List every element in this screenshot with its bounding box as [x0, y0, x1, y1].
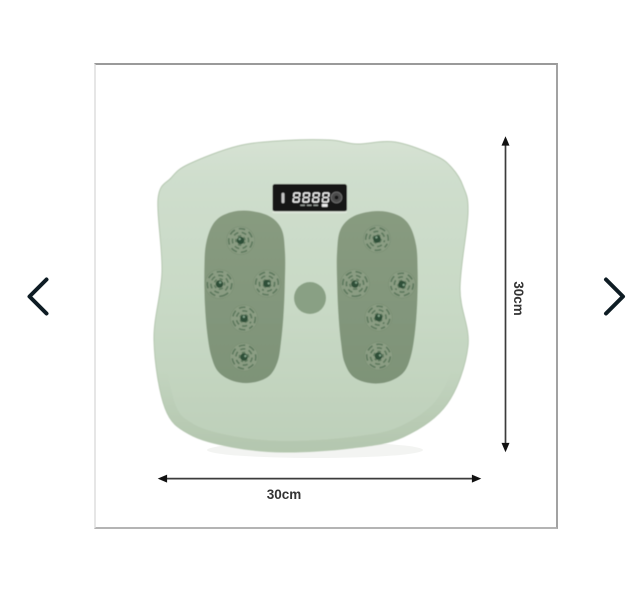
- svg-text:30cm: 30cm: [267, 487, 302, 502]
- svg-text:30cm: 30cm: [511, 281, 526, 316]
